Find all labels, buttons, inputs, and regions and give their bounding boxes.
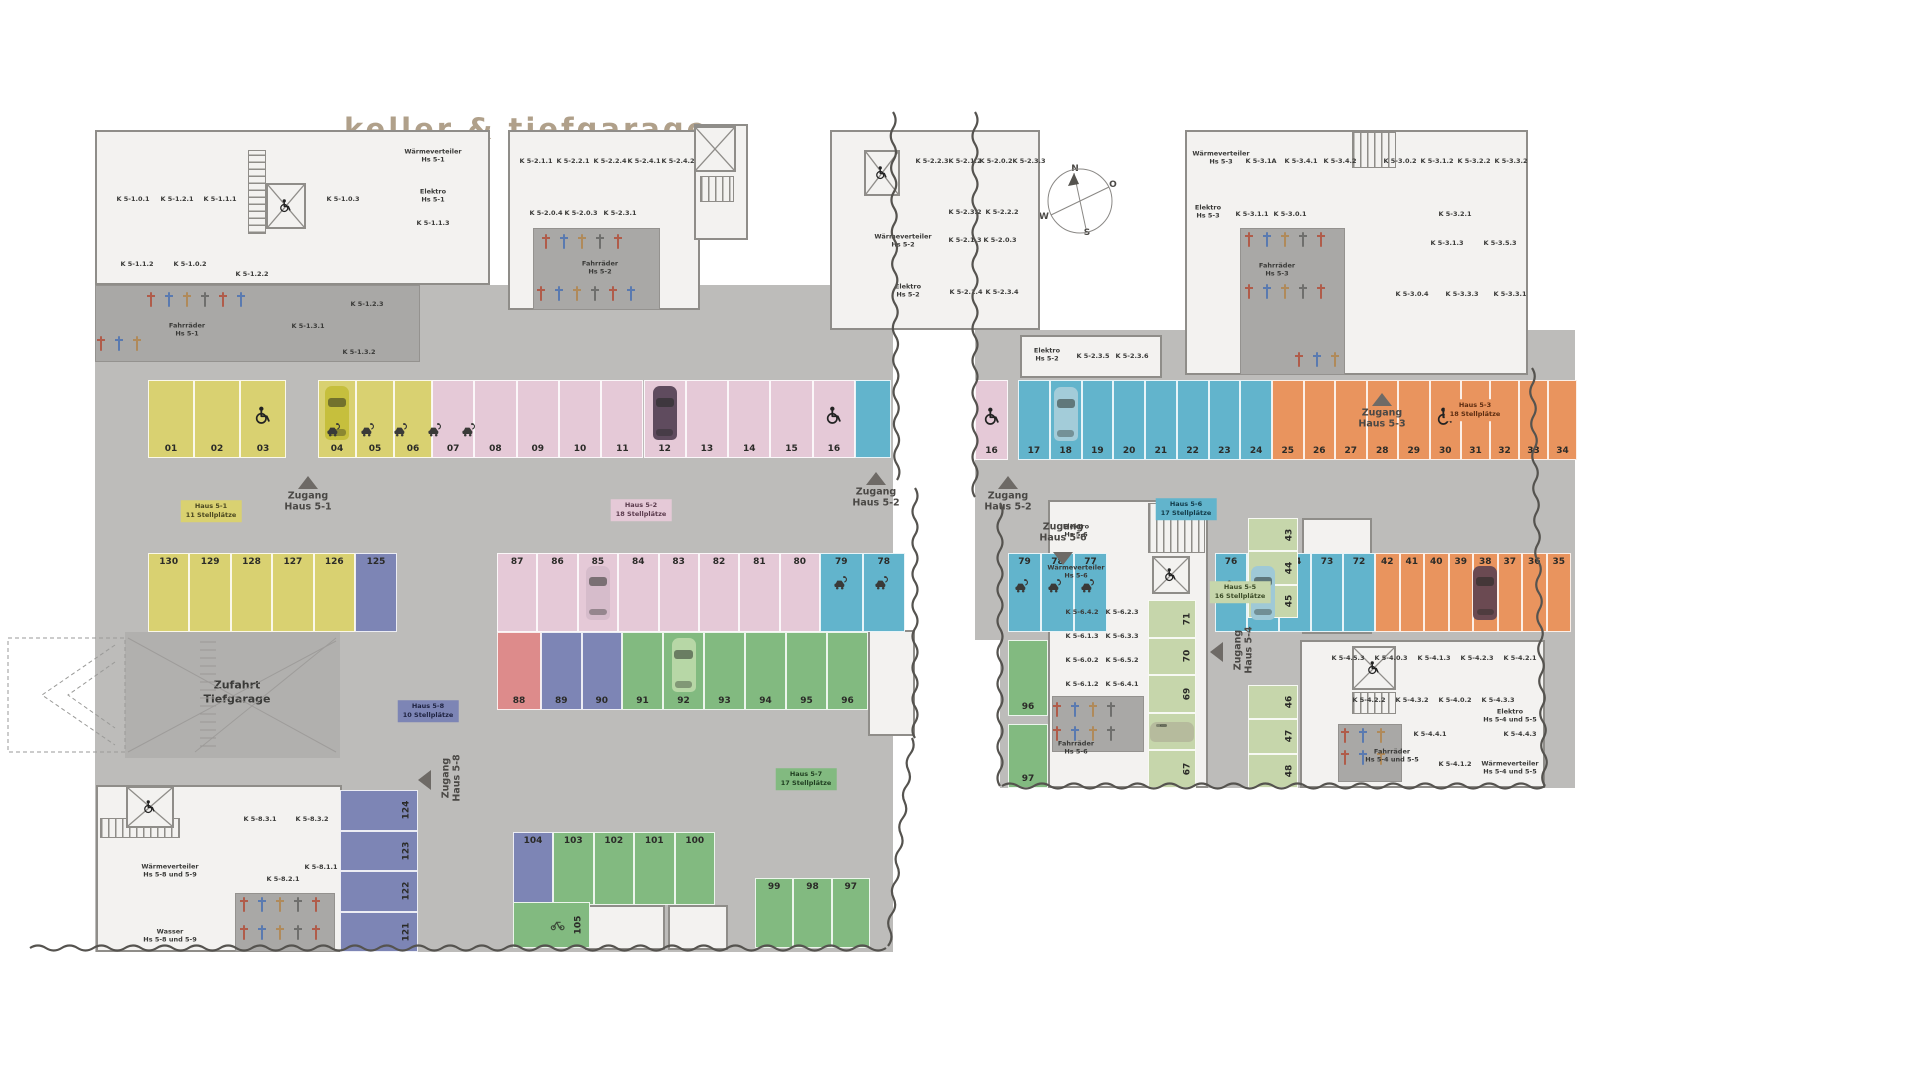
- parking-stall: 97: [832, 878, 870, 948]
- parking-stall: 05: [356, 380, 394, 458]
- parking-stall: 124: [340, 790, 418, 831]
- stall-number: 104: [514, 836, 552, 846]
- room-label: K 5-2.1.3: [948, 236, 981, 244]
- car-rear-window: [656, 429, 673, 435]
- parking-stall: 81: [739, 553, 779, 632]
- parking-stall: 129: [189, 553, 230, 632]
- stall-number: 123: [402, 841, 412, 860]
- stall-number: 22: [1178, 446, 1208, 456]
- parking-stall: 93: [704, 632, 745, 710]
- bike-icon: [545, 234, 547, 249]
- stall-number: 102: [595, 836, 634, 846]
- parking-stall: 46: [1248, 685, 1298, 719]
- parking-stall: 98: [793, 878, 831, 948]
- parking-stall: 23: [1209, 380, 1241, 460]
- compass-east-label: O: [1109, 180, 1117, 190]
- room-label: Fahrräder Hs 5-3: [1259, 262, 1295, 279]
- room-block: [668, 905, 728, 950]
- stall-number: 95: [787, 696, 826, 706]
- parking-stall: 10: [559, 380, 601, 458]
- stall-number: 101: [635, 836, 674, 846]
- parking-stall: 102: [594, 832, 635, 905]
- room-label: K 5-3.3.2: [1494, 157, 1527, 165]
- bike-icon: [1056, 702, 1058, 717]
- parking-stall: 103: [553, 832, 594, 905]
- bike-icon: [261, 897, 263, 912]
- parking-stall: 35: [1547, 553, 1572, 632]
- parking-stall: 33: [1519, 380, 1548, 460]
- car-rear-window: [1477, 609, 1494, 615]
- room-label: K 5-2.1.2: [948, 157, 981, 165]
- parking-stall: 01: [148, 380, 194, 458]
- stall-number: 39: [1450, 557, 1473, 567]
- underground-garage-floor-plan: .keller & tiefgarage_ N O S W 0102030405…: [0, 0, 1920, 1080]
- stall-number: 86: [538, 557, 576, 567]
- room-label: K 5-3.3.3: [1445, 290, 1478, 298]
- ev-charger-icon: [360, 422, 377, 439]
- zugang-label: Zugang Haus 5-3: [1358, 408, 1405, 431]
- zugang-triangle-icon: [1053, 552, 1073, 565]
- bike-icon: [1284, 232, 1286, 247]
- parking-stall: 34: [1548, 380, 1577, 460]
- stall-number: 94: [746, 696, 785, 706]
- bike-icon: [1298, 352, 1300, 367]
- parking-stall: 20: [1113, 380, 1145, 460]
- car-windshield: [656, 398, 674, 407]
- room-label: K 5-2.2.2: [985, 208, 1018, 216]
- room-label: K 5-6.1.2: [1065, 680, 1098, 688]
- zugang-triangle-icon: [998, 476, 1018, 489]
- stall-number: 10: [560, 444, 600, 454]
- room-label: K 5-8.3.2: [295, 815, 328, 823]
- stall-number: 29: [1399, 446, 1429, 456]
- bike-icon: [1362, 750, 1364, 765]
- room-label: K 5-3.0.2: [1383, 157, 1416, 165]
- parking-stall: 40: [1424, 553, 1449, 632]
- wheelchair-icon: [982, 406, 1002, 426]
- stall-number: 97: [833, 882, 869, 892]
- compass-south-label: S: [1084, 228, 1090, 238]
- room-label: K 5-8.3.1: [243, 815, 276, 823]
- stall-number: 11: [602, 444, 642, 454]
- parking-stall: 80: [780, 553, 820, 632]
- stall-number: 125: [356, 557, 396, 567]
- stall-number: 28: [1368, 446, 1398, 456]
- stall-number: 92: [664, 696, 703, 706]
- bike-icon: [1302, 284, 1304, 299]
- car-icon: [1473, 566, 1497, 620]
- room-label: Elektro Hs 5-2: [895, 283, 921, 300]
- room-label: K 5-4.3.2: [1395, 696, 1428, 704]
- ev-charger-icon: [833, 575, 850, 592]
- parking-stall: 130: [148, 553, 189, 632]
- room-label: K 5-2.3.3: [1012, 157, 1045, 165]
- parking-stall: 08: [474, 380, 516, 458]
- zugang-label: Zugang Haus 5-4: [1233, 626, 1256, 673]
- bike-icon: [617, 234, 619, 249]
- room-label: K 5-2.3.6: [1115, 352, 1148, 360]
- stall-number: 33: [1520, 446, 1547, 456]
- room-label: K 5-4.3.3: [1481, 696, 1514, 704]
- car-rear-window: [589, 609, 606, 615]
- motorcycle-icon: [550, 917, 566, 933]
- room-label: K 5-2.3.5: [1076, 352, 1109, 360]
- wheelchair-icon: [278, 198, 293, 213]
- parking-stall: 02: [194, 380, 240, 458]
- room-label: Elektro Hs 5-3: [1195, 204, 1221, 221]
- room-label: K 5-1.1.2: [120, 260, 153, 268]
- room-label: K 5-4.1.2: [1438, 760, 1471, 768]
- parking-stall: 97: [1008, 724, 1048, 788]
- room-label: K 5-1.3.2: [342, 348, 375, 356]
- house-stellplaetze-badge: Haus 5-2 18 Stellplätze: [611, 499, 672, 521]
- stall-number: 13: [687, 444, 727, 454]
- bike-icon: [1344, 750, 1346, 765]
- parking-stall: 121: [340, 912, 418, 953]
- room-label: K 5-2.0.3: [983, 236, 1016, 244]
- stall-number: 98: [794, 882, 830, 892]
- bike-icon: [1266, 284, 1268, 299]
- parking-stall: 128: [231, 553, 272, 632]
- bike-icon: [630, 286, 632, 301]
- room-block: [585, 905, 665, 950]
- stall-number: 03: [241, 444, 285, 454]
- room-label: K 5-6.0.2: [1065, 656, 1098, 664]
- parking-stall: 125: [355, 553, 397, 632]
- stall-number: 42: [1376, 557, 1399, 567]
- bike-icon: [540, 286, 542, 301]
- stall-number: 79: [1009, 557, 1040, 567]
- parking-stall: 19: [1082, 380, 1114, 460]
- car-rear-window: [1156, 724, 1161, 726]
- room-label: K 5-8.1.1: [304, 863, 337, 871]
- ev-charger-icon: [326, 422, 343, 439]
- room-label: K 5-2.0.4: [529, 209, 562, 217]
- wheelchair-icon: [1163, 567, 1178, 582]
- car-icon: [586, 566, 610, 620]
- parking-stall: 84: [618, 553, 658, 632]
- parking-stall: 88: [497, 632, 541, 710]
- compass-north-label: N: [1071, 164, 1079, 174]
- stall-number: 48: [1285, 765, 1295, 778]
- room-label: K 5-6.1.3: [1065, 632, 1098, 640]
- room-label: Elektro Hs 5-2: [1034, 347, 1060, 364]
- parking-stall: 86: [537, 553, 577, 632]
- car-rear-window: [1254, 609, 1271, 615]
- bike-icon: [599, 234, 601, 249]
- stall-number: 32: [1491, 446, 1518, 456]
- bike-icon: [186, 292, 188, 307]
- zugang-label: Zugang Haus 5-8: [441, 754, 464, 801]
- stall-number: 96: [828, 696, 867, 706]
- bike-icon: [315, 925, 317, 940]
- wheelchair-icon: [824, 405, 844, 425]
- house-stellplaetze-badge: Haus 5-6 17 Stellplätze: [1156, 498, 1217, 520]
- ev-charger-icon: [874, 575, 891, 592]
- room-label: K 5-1.1.1: [203, 195, 236, 203]
- bike-icon: [1320, 284, 1322, 299]
- compass-needle: [1068, 173, 1079, 186]
- bike-icon: [1092, 702, 1094, 717]
- stall-number: 06: [395, 444, 431, 454]
- bike-icon: [1110, 702, 1112, 717]
- bike-icon: [297, 897, 299, 912]
- bike-icon: [563, 234, 565, 249]
- compass-west-label: W: [1039, 212, 1049, 222]
- ev-charger-icon: [1014, 578, 1031, 595]
- bike-icon: [279, 897, 281, 912]
- parking-stall: 43: [1248, 518, 1298, 551]
- parking-stall: 15: [770, 380, 812, 458]
- stall-number: 24: [1241, 446, 1271, 456]
- room-label: K 5-2.2.1: [556, 157, 589, 165]
- parking-stall: 104: [513, 832, 553, 905]
- room-label: K 5-6.5.2: [1105, 656, 1138, 664]
- bike-icon: [261, 925, 263, 940]
- room-label: K 5-2.1.1: [519, 157, 552, 165]
- parking-stall: 87: [497, 553, 537, 632]
- parking-stall: 94: [745, 632, 786, 710]
- room-label: K 5-1.2.1: [160, 195, 193, 203]
- stall-number: 128: [232, 557, 271, 567]
- stall-number: 23: [1210, 446, 1240, 456]
- stall-number: 07: [433, 444, 473, 454]
- room-label: K 5-1.0.1: [116, 195, 149, 203]
- house-stellplaetze-badge: Haus 5-1 11 Stellplätze: [181, 500, 242, 522]
- parking-stall: 127: [272, 553, 313, 632]
- wheelchair-icon: [142, 799, 157, 814]
- car-windshield: [328, 398, 346, 407]
- stall-number: 83: [660, 557, 698, 567]
- ev-charger-icon: [1047, 578, 1064, 595]
- parking-stall: 11: [601, 380, 643, 458]
- zugang-label: Zugang Haus 5-6: [1039, 522, 1086, 545]
- car-windshield: [674, 650, 692, 659]
- zugang-label: Zugang Haus 5-2: [984, 491, 1031, 514]
- room-label: Wärmeverteiler Hs 5-3: [1192, 150, 1249, 167]
- room-label: K 5-4.2.2: [1352, 696, 1385, 704]
- stall-number: 36: [1523, 557, 1546, 567]
- stall-number: 15: [771, 444, 811, 454]
- parking-stall: 82: [699, 553, 739, 632]
- bike-icon: [1248, 284, 1250, 299]
- stall-number: 97: [1009, 774, 1047, 784]
- room-label: K 5-1.2.2: [235, 270, 268, 278]
- parking-stall: 42: [1375, 553, 1400, 632]
- car-rear-window: [1057, 430, 1074, 436]
- bike-icon: [118, 336, 120, 351]
- stall-number: 124: [402, 801, 412, 820]
- room-label: Fahrräder Hs 5-1: [169, 322, 205, 339]
- bike-icon: [581, 234, 583, 249]
- bike-icon: [1344, 728, 1346, 743]
- parking-stall: 90: [582, 632, 623, 710]
- room-label: Elektro Hs 5-4 und 5-5: [1483, 708, 1537, 725]
- bike-icon: [558, 286, 560, 301]
- parking-stall: 126: [314, 553, 355, 632]
- bike-icon: [1334, 352, 1336, 367]
- bike-icon: [204, 292, 206, 307]
- room-label: K 5-3.2.2: [1457, 157, 1490, 165]
- stall-number: 99: [756, 882, 792, 892]
- stall-number: 129: [190, 557, 229, 567]
- parking-stall: 67: [1148, 750, 1196, 788]
- room-label: Wasser Hs 5-8 und 5-9: [143, 928, 197, 945]
- zugang-triangle-icon: [866, 472, 886, 485]
- car-icon: [672, 638, 696, 692]
- stall-number: 19: [1083, 446, 1113, 456]
- stall-number: 05: [357, 444, 393, 454]
- parking-stall: 73: [1311, 553, 1343, 632]
- bike-icon: [222, 292, 224, 307]
- stall-number: 44: [1285, 562, 1295, 575]
- bike-icon: [100, 336, 102, 351]
- stall-number: 21: [1146, 446, 1176, 456]
- stall-number: 89: [542, 696, 581, 706]
- room-label: K 5-3.1.1: [1235, 210, 1268, 218]
- bike-icon: [1284, 284, 1286, 299]
- bike-icon: [279, 925, 281, 940]
- bike-icon: [1110, 726, 1112, 741]
- room-label: K 5-6.2.3: [1105, 608, 1138, 616]
- bike-room-floor: [235, 893, 335, 952]
- room-label: K 5-4.4.1: [1413, 730, 1446, 738]
- stall-number: 78: [864, 557, 905, 567]
- ev-charger-icon: [461, 422, 478, 439]
- wheelchair-icon: [874, 165, 889, 180]
- stall-number: 01: [149, 444, 193, 454]
- room-label: K 5-6.4.2: [1065, 608, 1098, 616]
- stall-number: 46: [1285, 696, 1295, 709]
- house-stellplaetze-badge: Haus 5-5 16 Stellplätze: [1210, 581, 1271, 603]
- room-label: K 5-3.1A: [1245, 157, 1276, 165]
- stall-number: 96: [1009, 702, 1047, 712]
- bike-icon: [612, 286, 614, 301]
- stall-number: 91: [623, 696, 662, 706]
- stall-number: 14: [729, 444, 769, 454]
- zugang-triangle-icon: [418, 770, 431, 790]
- room-block: [868, 630, 915, 736]
- room-label: K 5-2.0.3: [564, 209, 597, 217]
- room-label: K 5-6.4.1: [1105, 680, 1138, 688]
- bike-icon: [1380, 728, 1382, 743]
- stall-number: 70: [1183, 650, 1193, 663]
- stall-number: 16: [976, 446, 1007, 456]
- stairs: [248, 150, 266, 234]
- room-label: K 5-2.2.4: [593, 157, 626, 165]
- room-label: Zufahrt Tiefgarage: [204, 679, 271, 708]
- room-label: Wärmeverteiler Hs 5-2: [874, 233, 931, 250]
- stall-number: 87: [498, 557, 536, 567]
- bike-icon: [1074, 702, 1076, 717]
- room-label: K 5-4.5.3: [1331, 654, 1364, 662]
- parking-stall: 99: [755, 878, 793, 948]
- parking-stall: 07: [432, 380, 474, 458]
- parking-stall: 101: [634, 832, 675, 905]
- stall-number: 25: [1273, 446, 1303, 456]
- stall-number: 130: [149, 557, 188, 567]
- stall-number: 27: [1336, 446, 1366, 456]
- stall-number: 122: [402, 882, 412, 901]
- parking-stall: 83: [659, 553, 699, 632]
- room-label: K 5-1.3.1: [291, 322, 324, 330]
- room-label: K 5-4.0.2: [1438, 696, 1471, 704]
- room-label: K 5-3.5.3: [1483, 239, 1516, 247]
- bike-icon: [315, 897, 317, 912]
- room-label: K 5-3.0.1: [1273, 210, 1306, 218]
- bike-icon: [168, 292, 170, 307]
- room-label: K 5-2.0.2: [979, 157, 1012, 165]
- stall-number: 88: [498, 696, 540, 706]
- bike-icon: [1248, 232, 1250, 247]
- room-label: K 5-1.0.3: [326, 195, 359, 203]
- stall-number: 04: [319, 444, 355, 454]
- parking-stall: 41: [1400, 553, 1425, 632]
- zugang-label: Zugang Haus 5-2: [852, 487, 899, 510]
- bike-icon: [1320, 232, 1322, 247]
- parking-stall: [855, 380, 891, 458]
- parking-stall: 36: [1522, 553, 1547, 632]
- stall-number: 09: [518, 444, 558, 454]
- stall-number: 105: [574, 916, 584, 935]
- bike-room-floor: [1240, 228, 1345, 375]
- parking-stall: 39: [1449, 553, 1474, 632]
- bike-icon: [243, 897, 245, 912]
- parking-stall: 89: [541, 632, 582, 710]
- car-icon: [653, 386, 677, 440]
- stall-number: 103: [554, 836, 593, 846]
- bike-icon: [1302, 232, 1304, 247]
- parking-stall: 26: [1304, 380, 1336, 460]
- parking-stall: 96: [1008, 640, 1048, 716]
- stall-number: 71: [1183, 613, 1193, 626]
- room-label: K 5-1.0.2: [173, 260, 206, 268]
- stall-number: 17: [1019, 446, 1049, 456]
- parking-stall: 70: [1148, 638, 1196, 676]
- stall-number: 81: [740, 557, 778, 567]
- stall-number: 84: [619, 557, 657, 567]
- stall-number: 82: [700, 557, 738, 567]
- room-label: K 5-2.3.1: [603, 209, 636, 217]
- bike-icon: [136, 336, 138, 351]
- parking-stall: 91: [622, 632, 663, 710]
- parking-stall: 78: [863, 553, 906, 632]
- parking-stall: 22: [1177, 380, 1209, 460]
- stall-number: 79: [821, 557, 862, 567]
- stairs: [700, 176, 734, 202]
- room-label: K 5-6.3.3: [1105, 632, 1138, 640]
- stall-number: 72: [1344, 557, 1374, 567]
- parking-stall: 79: [820, 553, 863, 632]
- room-label: K 5-3.0.4: [1395, 290, 1428, 298]
- parking-stall: 14: [728, 380, 770, 458]
- room-label: K 5-3.4.1: [1284, 157, 1317, 165]
- parking-stall: 71: [1148, 600, 1196, 638]
- car-icon: [1054, 387, 1078, 441]
- parking-stall: 24: [1240, 380, 1272, 460]
- ev-charger-icon: [1080, 578, 1097, 595]
- bike-icon: [1316, 352, 1318, 367]
- ev-charger-icon: [393, 422, 410, 439]
- bike-icon: [594, 286, 596, 301]
- stall-number: 80: [781, 557, 819, 567]
- car-windshield: [1476, 577, 1494, 586]
- room-label: K 5-2.2.3: [915, 157, 948, 165]
- parking-stall: 47: [1248, 719, 1298, 753]
- stall-number: 69: [1183, 688, 1193, 701]
- house-stellplaetze-badge: Haus 5-7 17 Stellplätze: [776, 768, 837, 790]
- zugang-label: Zugang Haus 5-1: [284, 491, 331, 514]
